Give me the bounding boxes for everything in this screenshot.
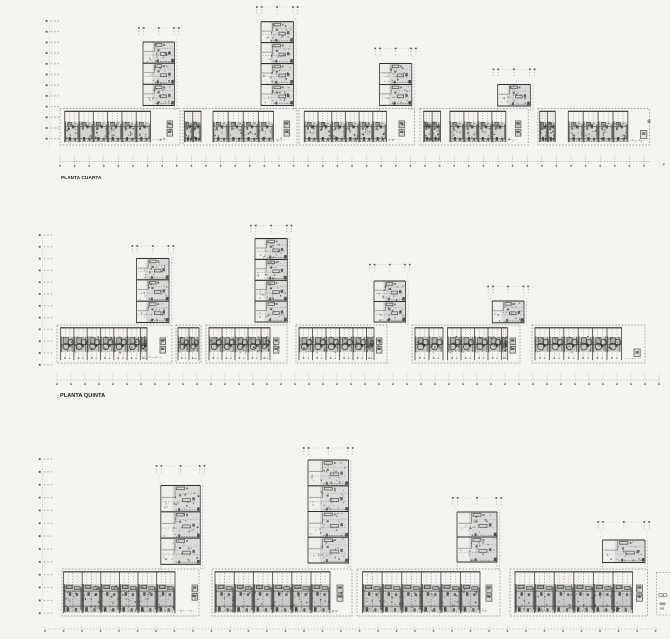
svg-text:PLANTA QUINTA: PLANTA QUINTA (60, 393, 105, 399)
svg-text:PLANTA CUARTA: PLANTA CUARTA (61, 175, 102, 180)
